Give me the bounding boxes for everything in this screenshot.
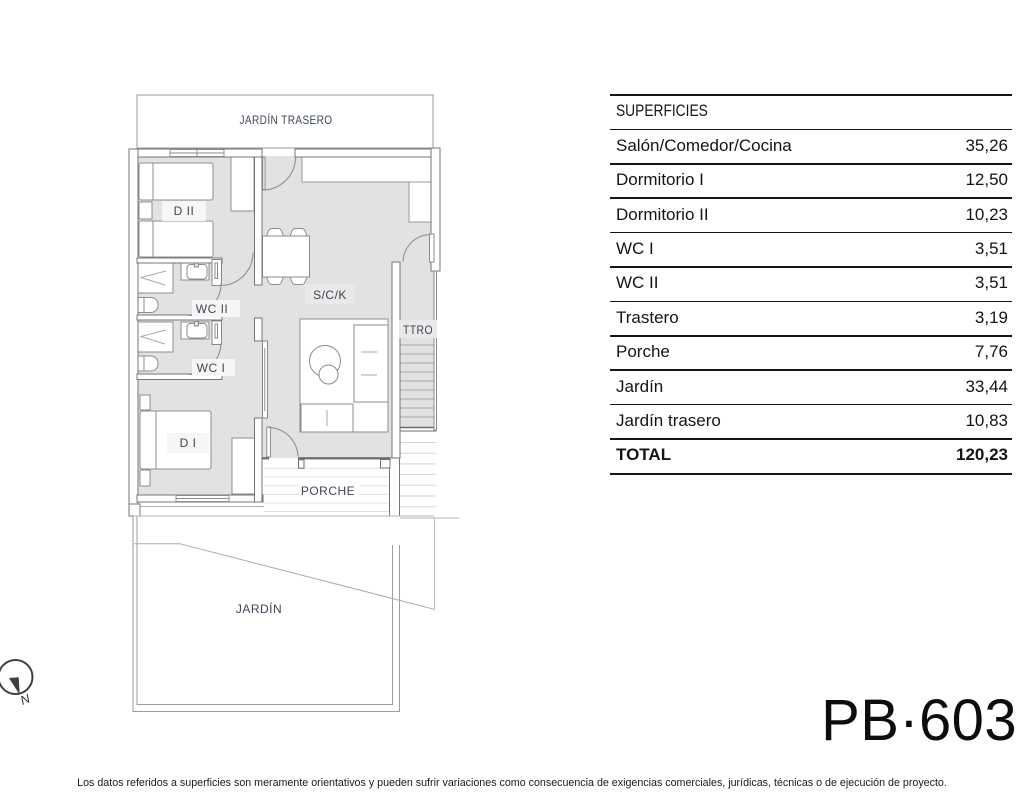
svg-text:WC I: WC I (197, 361, 226, 375)
svg-text:S/C/K: S/C/K (313, 288, 347, 302)
svg-text:TTRO: TTRO (403, 323, 433, 337)
svg-text:JARDÍN TRASERO: JARDÍN TRASERO (240, 112, 333, 127)
svg-text:D I: D I (180, 436, 197, 450)
svg-text:JARDÍN: JARDÍN (236, 601, 282, 616)
svg-text:PORCHE: PORCHE (301, 484, 355, 498)
svg-text:WC II: WC II (196, 302, 229, 316)
svg-text:D II: D II (174, 204, 195, 218)
svg-text:N: N (18, 691, 33, 708)
